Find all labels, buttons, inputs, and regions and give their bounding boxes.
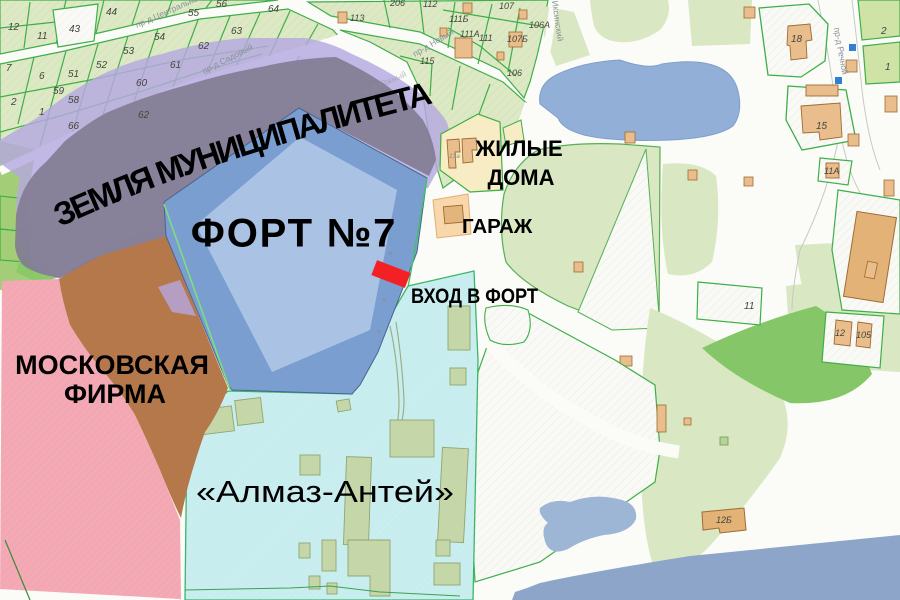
svg-text:115: 115 — [420, 56, 435, 66]
svg-text:13а: 13а — [449, 153, 460, 160]
svg-text:1: 1 — [39, 107, 45, 118]
svg-text:55: 55 — [188, 8, 200, 19]
svg-text:ФОРТ №7: ФОРТ №7 — [191, 212, 397, 256]
svg-text:106: 106 — [507, 68, 522, 78]
svg-text:107: 107 — [499, 1, 515, 11]
svg-text:12: 12 — [8, 22, 20, 33]
svg-text:12Б: 12Б — [716, 515, 732, 525]
svg-text:52: 52 — [96, 60, 108, 71]
svg-text:18: 18 — [791, 34, 803, 45]
svg-text:113: 113 — [350, 13, 364, 23]
svg-text:105: 105 — [856, 330, 872, 340]
svg-text:63: 63 — [231, 26, 243, 37]
svg-text:62: 62 — [138, 110, 150, 121]
svg-text:61: 61 — [170, 60, 181, 71]
svg-text:111А: 111А — [460, 29, 480, 39]
svg-text:106А: 106А — [529, 20, 550, 30]
svg-text:107Б: 107Б — [507, 34, 528, 44]
svg-text:ГАРАЖ: ГАРАЖ — [462, 215, 533, 238]
svg-text:60: 60 — [136, 78, 148, 89]
svg-text:53: 53 — [123, 46, 135, 57]
svg-text:«Алмаз-Антей»: «Алмаз-Антей» — [196, 474, 454, 509]
svg-text:11: 11 — [37, 31, 47, 42]
svg-text:112: 112 — [423, 0, 437, 9]
svg-text:ДОМА: ДОМА — [488, 165, 555, 190]
svg-text:11А: 11А — [824, 166, 839, 176]
svg-text:11: 11 — [744, 301, 754, 312]
svg-text:2: 2 — [880, 26, 887, 37]
svg-text:59: 59 — [53, 86, 65, 97]
svg-text:111Б: 111Б — [449, 14, 469, 24]
svg-text:54: 54 — [154, 32, 166, 43]
svg-text:2: 2 — [10, 97, 17, 108]
svg-text:43: 43 — [69, 24, 81, 35]
svg-text:66: 66 — [68, 121, 80, 132]
svg-text:56: 56 — [216, 0, 228, 10]
svg-text:62: 62 — [198, 41, 210, 52]
svg-text:ЖИЛЫЕ: ЖИЛЫЕ — [474, 136, 562, 161]
svg-text:6: 6 — [39, 71, 45, 82]
svg-text:44: 44 — [106, 7, 118, 18]
svg-text:111: 111 — [479, 33, 493, 43]
svg-text:1: 1 — [885, 62, 891, 73]
svg-text:64: 64 — [268, 4, 280, 15]
svg-text:ВХОД В ФОРТ: ВХОД В ФОРТ — [411, 285, 538, 308]
svg-text:206: 206 — [389, 0, 405, 8]
svg-text:ФИРМА: ФИРМА — [64, 379, 166, 409]
svg-text:12: 12 — [835, 328, 845, 338]
svg-text:7: 7 — [6, 63, 12, 74]
svg-text:58: 58 — [68, 95, 80, 106]
svg-text:МОСКОВСКАЯ: МОСКОВСКАЯ — [15, 350, 209, 380]
svg-text:15: 15 — [816, 121, 828, 132]
svg-text:51: 51 — [68, 69, 79, 80]
